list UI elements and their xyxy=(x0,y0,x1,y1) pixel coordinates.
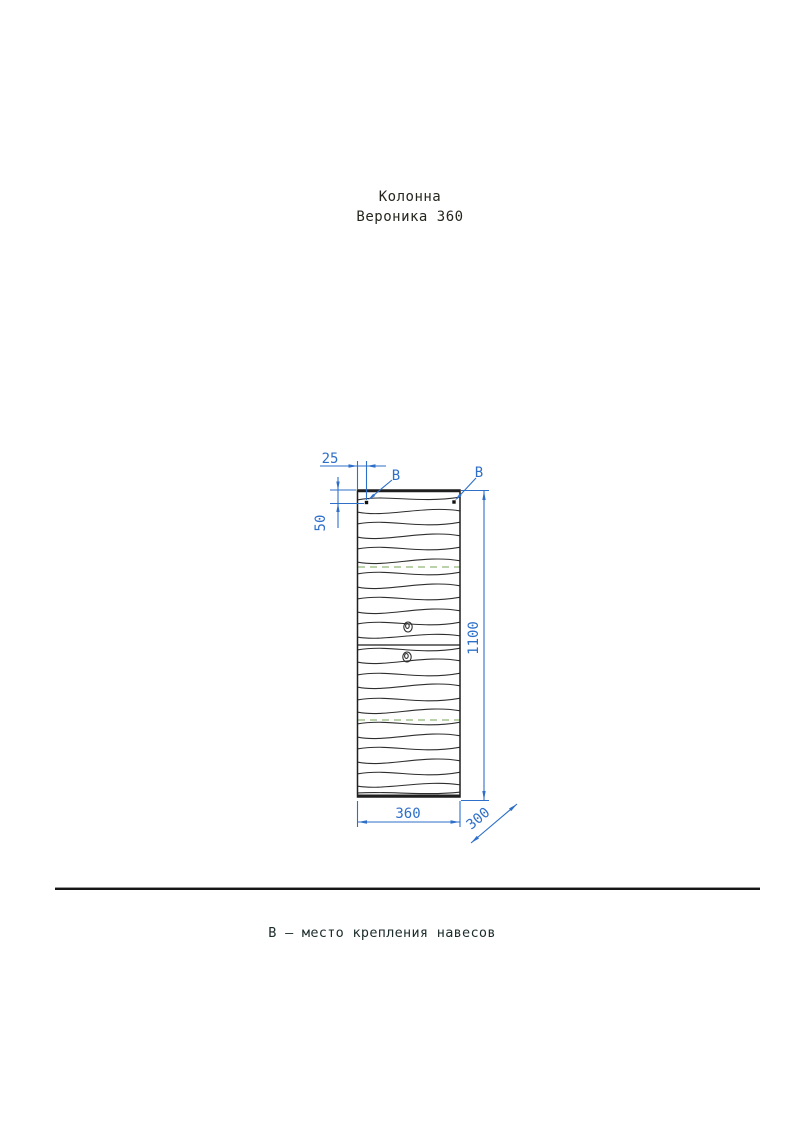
attachment-label-left: В xyxy=(392,468,400,484)
attachment-label-right: В xyxy=(475,465,483,481)
footnote-text: В – место крепления навесов xyxy=(0,925,782,941)
wood-knot-icon xyxy=(404,622,412,632)
shelf-position-lines xyxy=(358,567,460,720)
attachment-point-markers xyxy=(365,500,456,504)
dimension-360-value: 360 xyxy=(395,806,420,822)
dimension-50 xyxy=(330,477,364,528)
technical-drawing: 25 50 1100 360 300 В В xyxy=(0,0,800,1132)
divider-line xyxy=(55,887,760,890)
dimension-25-value: 25 xyxy=(322,451,339,467)
dimension-annotations xyxy=(320,461,517,843)
dimension-50-value: 50 xyxy=(313,515,329,532)
dimension-300-value: 300 xyxy=(464,805,494,834)
dimension-1100-value: 1100 xyxy=(466,621,482,655)
